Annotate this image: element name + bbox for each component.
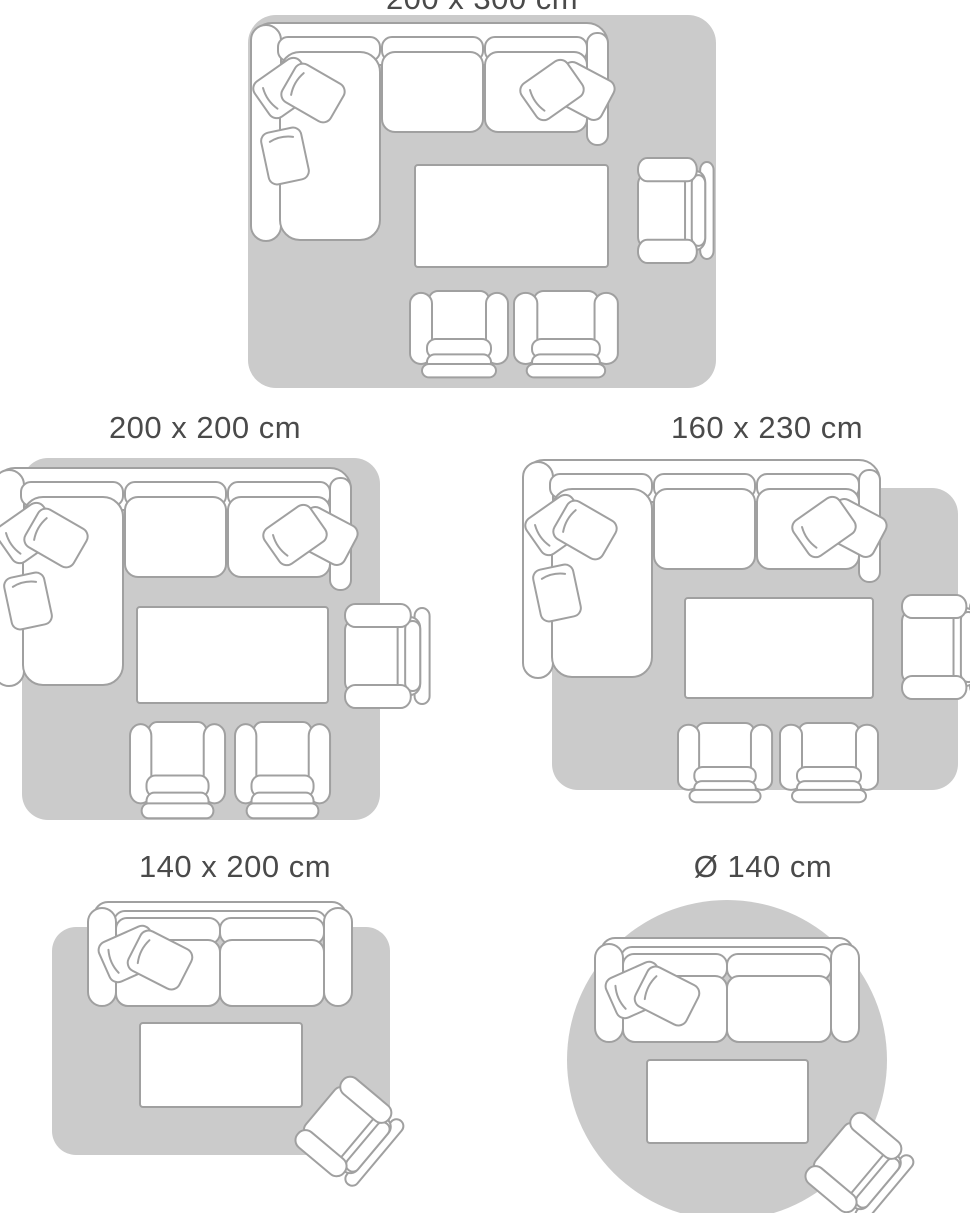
two-seat-sofa-illustration bbox=[88, 902, 352, 1006]
coffee-table-illustration bbox=[647, 1060, 808, 1143]
layout-diagram-140x200 bbox=[30, 890, 450, 1213]
size-label-160x230: 160 x 230 cm bbox=[567, 409, 967, 447]
coffee-table-illustration bbox=[137, 607, 328, 703]
coffee-table-illustration bbox=[685, 598, 873, 698]
armchair-illustration bbox=[345, 604, 430, 708]
size-label-200x200: 200 x 200 cm bbox=[5, 409, 405, 447]
ottoman-illustration bbox=[410, 291, 508, 377]
coffee-table-illustration bbox=[140, 1023, 302, 1107]
ottoman-illustration bbox=[514, 291, 618, 377]
layout-diagram-200x200 bbox=[0, 450, 440, 823]
two-seat-sofa-illustration bbox=[595, 938, 859, 1042]
layout-diagram-200x300 bbox=[230, 0, 730, 398]
ottoman-illustration bbox=[780, 723, 878, 802]
size-label-round-140: Ø 140 cm bbox=[563, 848, 963, 886]
armchair-illustration bbox=[902, 595, 970, 699]
armchair-illustration bbox=[638, 158, 714, 263]
layout-diagram-round-140 bbox=[540, 890, 970, 1213]
size-label-140x200: 140 x 200 cm bbox=[35, 848, 435, 886]
ottoman-illustration bbox=[235, 722, 330, 818]
rug-size-guide: 200 x 300 cm 200 x 200 cm 160 x 230 cm bbox=[0, 0, 970, 1213]
ottoman-illustration bbox=[678, 723, 772, 802]
coffee-table-illustration bbox=[415, 165, 608, 267]
layout-diagram-160x230 bbox=[490, 450, 970, 823]
ottoman-illustration bbox=[130, 722, 225, 818]
